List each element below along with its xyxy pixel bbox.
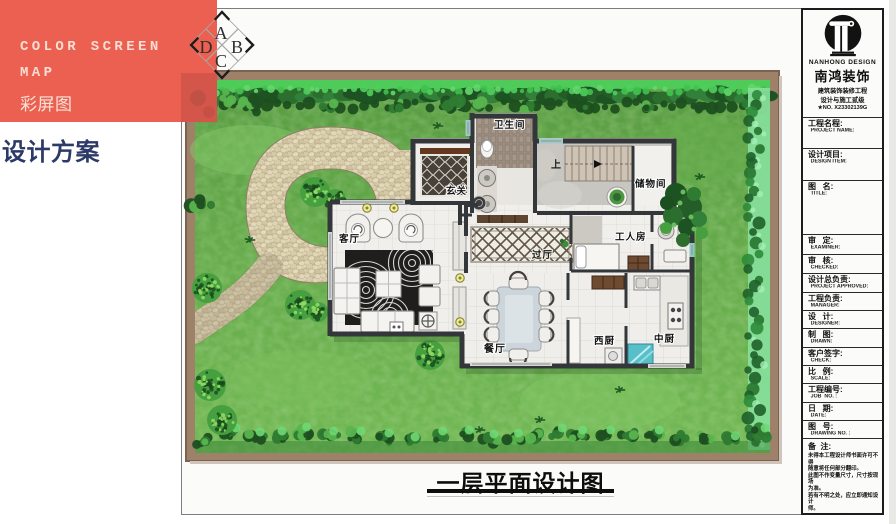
svg-text:B: B — [231, 37, 243, 57]
svg-text:玄关: 玄关 — [446, 185, 467, 197]
svg-text:西厨: 西厨 — [594, 336, 615, 347]
svg-text:上: 上 — [551, 158, 561, 171]
svg-text:客厅: 客厅 — [338, 233, 360, 245]
svg-text:餐厅: 餐厅 — [483, 342, 506, 355]
svg-text:C: C — [215, 51, 227, 71]
svg-text:D: D — [200, 37, 213, 57]
svg-text:过厅: 过厅 — [532, 249, 553, 261]
svg-text:中厨: 中厨 — [654, 333, 675, 345]
svg-text:工人房: 工人房 — [615, 231, 647, 243]
svg-text:卫生间: 卫生间 — [494, 119, 526, 131]
svg-text:A: A — [215, 23, 228, 43]
svg-text:储物间: 储物间 — [635, 178, 667, 190]
